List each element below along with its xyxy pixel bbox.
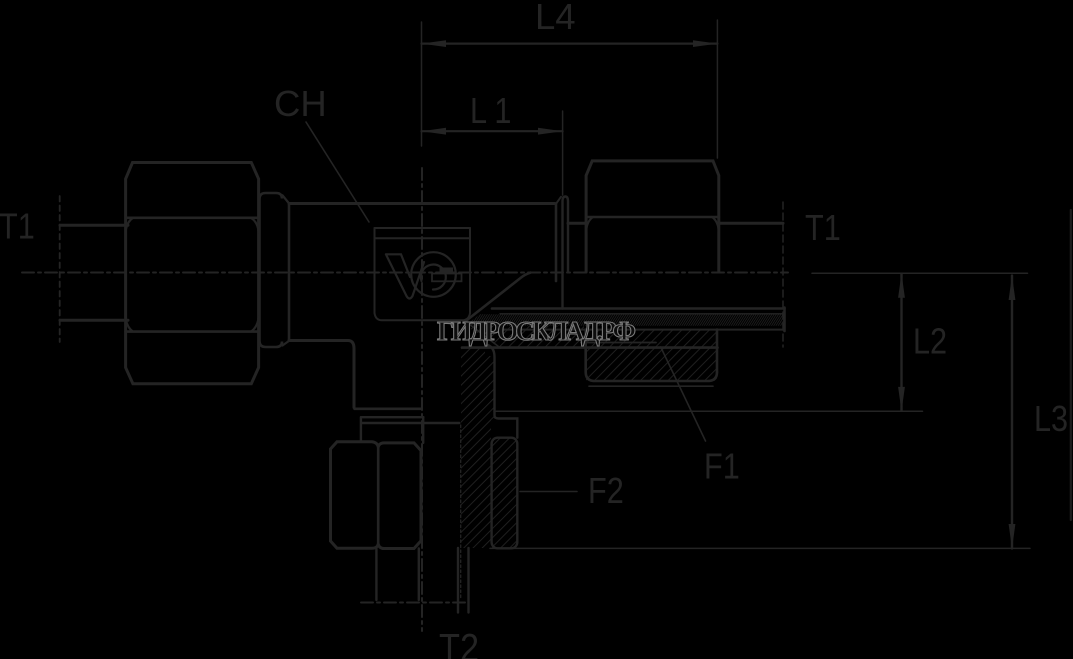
svg-text:F2: F2 [588,471,624,512]
svg-text:T1: T1 [0,206,35,247]
svg-text:F1: F1 [704,446,740,487]
svg-text:ГИДРОСКЛАД.РФ: ГИДРОСКЛАД.РФ [437,315,636,346]
svg-text:L3: L3 [1034,399,1068,440]
svg-text:CH: CH [274,83,327,124]
svg-text:L 1: L 1 [470,91,511,132]
svg-text:L2: L2 [913,321,947,362]
svg-text:T1: T1 [805,208,841,249]
svg-text:T2: T2 [439,626,479,659]
svg-text:L4: L4 [535,0,576,37]
